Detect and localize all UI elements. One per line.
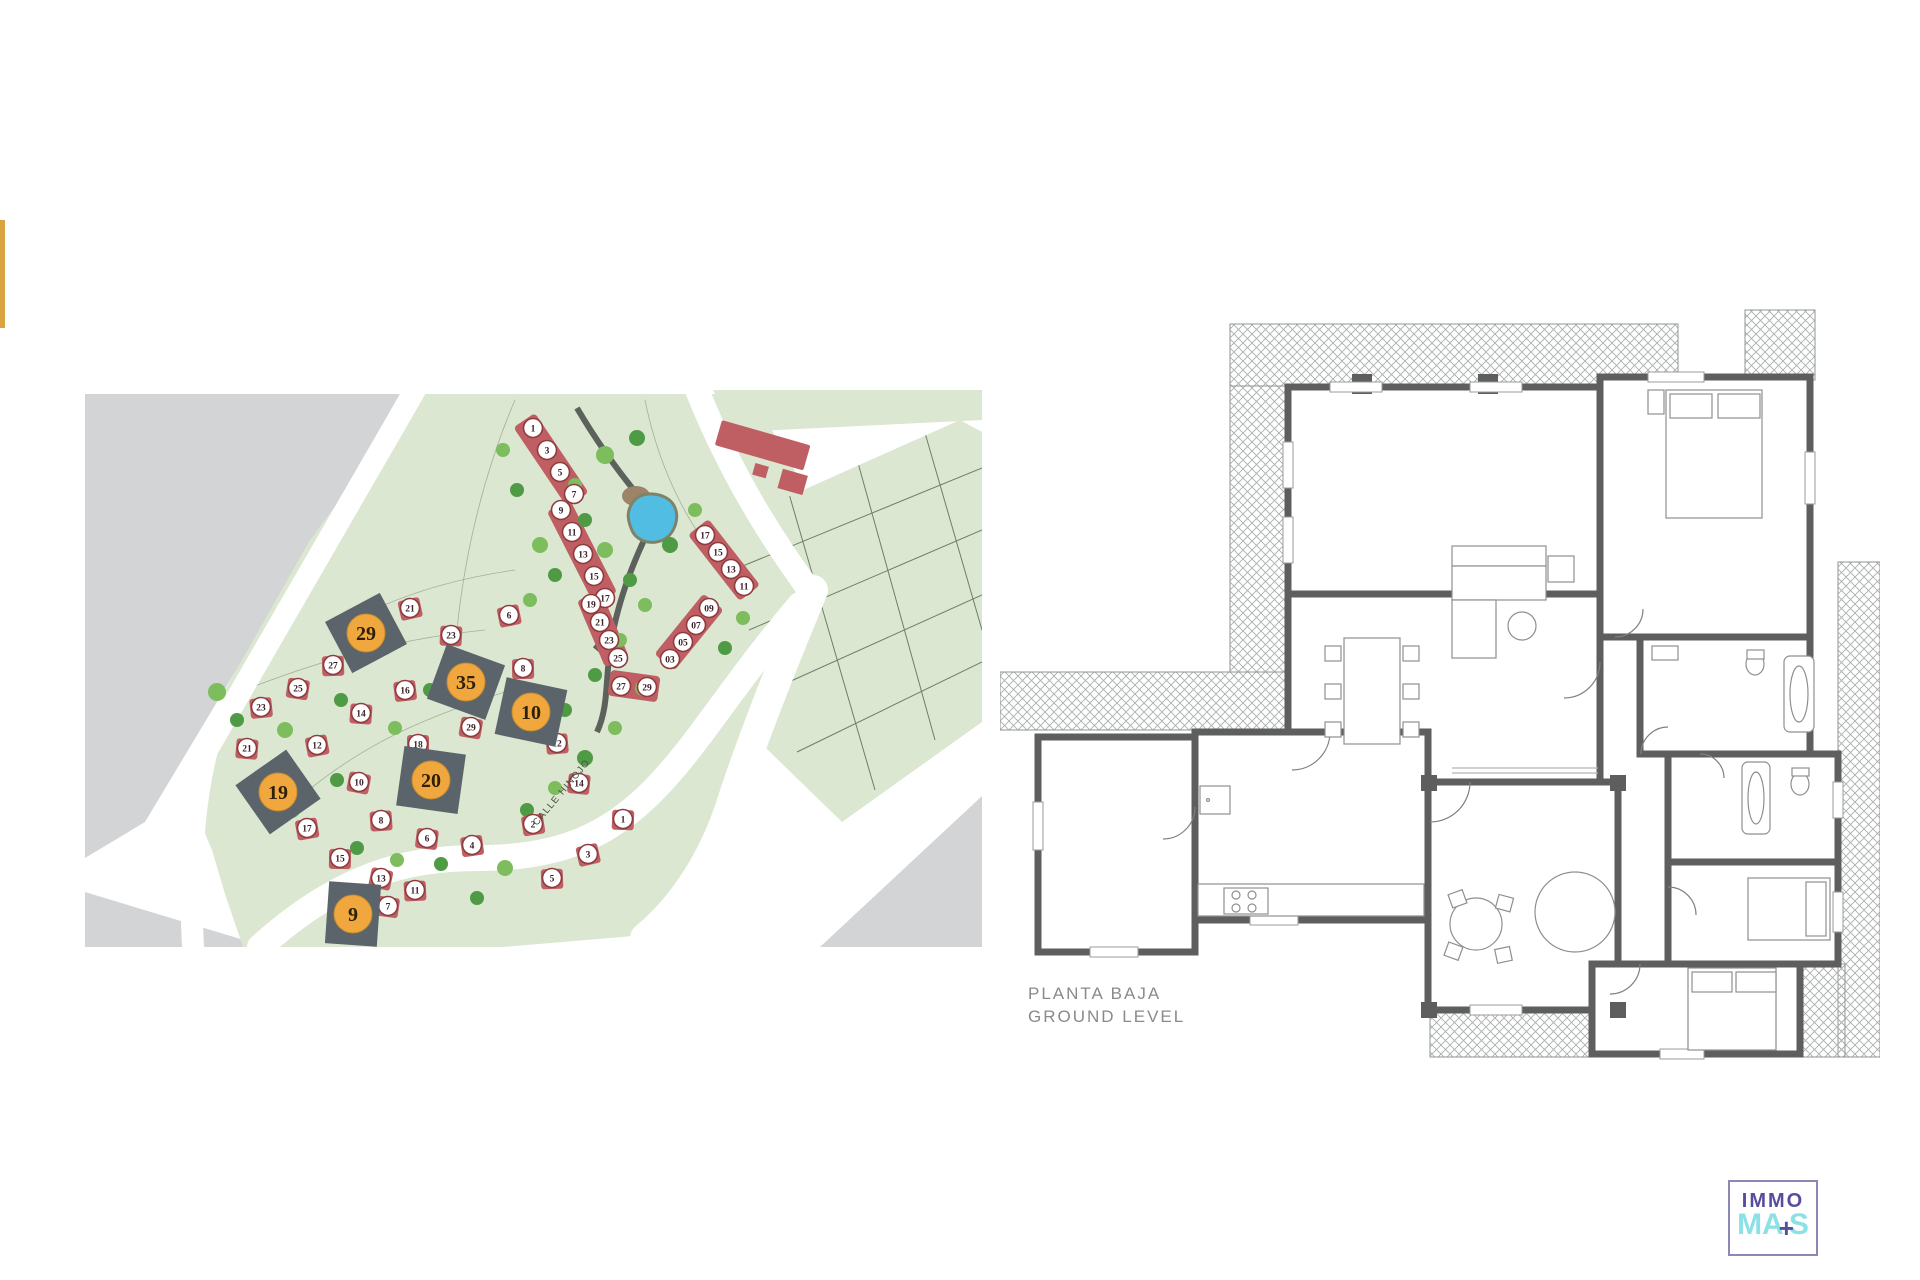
plot-number: 9 [559, 506, 564, 516]
rowhouse-number-marker: 29 [638, 678, 657, 697]
rowhouse-number-marker: 5 [551, 463, 570, 482]
house-marker: 17 [295, 817, 320, 841]
tree-icon [470, 891, 484, 905]
dining-table [1344, 638, 1400, 744]
plot-number: 12 [312, 741, 322, 751]
tree-icon [388, 721, 402, 735]
tree-icon [688, 503, 702, 517]
house-marker: 5 [541, 869, 564, 890]
plot-number: 25 [613, 654, 623, 664]
plot-number: 6 [507, 611, 512, 621]
sink-1 [1652, 646, 1678, 660]
rug-circle [1535, 872, 1615, 952]
rowhouse-number-marker: 15 [585, 567, 604, 586]
plot-number: 17 [302, 824, 312, 834]
plot-number: 7 [386, 902, 391, 912]
plot-number: 5 [558, 468, 563, 478]
house-marker: 14 [349, 703, 372, 724]
plot-number: 21 [595, 618, 605, 628]
tree-icon [497, 860, 513, 876]
tree-icon [208, 683, 226, 701]
plot-number: 03 [665, 655, 675, 665]
rowhouse-number-marker: 25 [609, 649, 628, 668]
floor-plan-drawing [1000, 262, 1880, 1062]
tree-icon [434, 857, 448, 871]
rowhouse-number-marker: 09 [700, 599, 719, 618]
tree-icon [608, 721, 622, 735]
house-marker: 16 [393, 680, 417, 703]
tree-icon [277, 722, 293, 738]
coffee-table [1508, 612, 1536, 640]
site-plan: 2127252321171513117161412181086423682912… [85, 390, 982, 947]
house-marker: 12 [304, 734, 329, 758]
plot-number: 17 [600, 594, 610, 604]
rowhouse-number-marker: 17 [696, 526, 715, 545]
tree-icon [532, 537, 548, 553]
plus-icon: + [1779, 1213, 1794, 1243]
tree-icon [588, 668, 602, 682]
plot-number: 27 [616, 682, 626, 692]
caption-line-en: GROUND LEVEL [1028, 1005, 1185, 1028]
caption-line-es: PLANTA BAJA [1028, 982, 1185, 1005]
plot-number: 07 [691, 621, 701, 631]
plot-number: 14 [356, 709, 366, 719]
rowhouse-number-marker: 03 [661, 650, 680, 669]
floor-plan [1000, 262, 1880, 1062]
house-marker: 29 [458, 716, 483, 740]
plot-number: 13 [726, 565, 736, 575]
house-marker: 8 [369, 810, 392, 831]
plot-number: 15 [589, 572, 599, 582]
rowhouse-number-marker: 13 [574, 545, 593, 564]
rowhouse-number-marker: 3 [538, 441, 557, 460]
rowhouse-number-marker: 27 [612, 677, 631, 696]
tree-icon [330, 773, 344, 787]
pond [628, 494, 676, 542]
plot-number: 21 [242, 744, 252, 754]
immomas-logo: IMMO MA+S [1728, 1180, 1818, 1256]
highlighted-plot-number: 10 [521, 702, 541, 724]
plot-number: 8 [379, 816, 384, 826]
site-plan-map: 2127252321171513117161412181086423682912… [85, 390, 982, 947]
tree-icon [334, 693, 348, 707]
plot-number: 3 [545, 446, 550, 456]
highlighted-plot-marker: 9 [325, 881, 381, 946]
plot-number: 09 [704, 604, 714, 614]
tree-icon [578, 513, 592, 527]
floor-plan-caption: PLANTA BAJA GROUND LEVEL [1028, 982, 1185, 1028]
rowhouse-number-marker: 11 [735, 577, 754, 596]
rowhouse-number-marker: 13 [722, 560, 741, 579]
brochure-page: { "accent_color": "#d9a33f", "site_plan"… [0, 0, 1920, 1280]
plot-number: 05 [678, 638, 688, 648]
rowhouse-number-marker: 19 [582, 595, 601, 614]
plot-number: 13 [376, 874, 386, 884]
house-marker: 21 [235, 738, 259, 760]
house-marker: 4 [460, 835, 485, 858]
plot-number: 23 [256, 703, 266, 713]
house-marker: 11 [404, 880, 427, 901]
gold-accent-bar [0, 220, 5, 328]
rowhouse-number-marker: 05 [674, 633, 693, 652]
plot-number: 4 [470, 841, 475, 851]
rowhouse-number-marker: 7 [565, 485, 584, 504]
house-marker: 23 [249, 697, 273, 719]
plot-number: 23 [446, 631, 456, 641]
highlighted-plot-number: 19 [268, 782, 288, 804]
plot-number: 1 [621, 815, 626, 825]
house-marker: 25 [285, 677, 310, 700]
plot-number: 21 [405, 604, 415, 614]
tree-icon [662, 537, 678, 553]
house-marker: 6 [415, 828, 439, 851]
tree-icon [597, 542, 613, 558]
highlighted-plot-marker: 20 [396, 746, 466, 814]
plot-number: 16 [400, 686, 410, 696]
tree-icon [523, 593, 537, 607]
fridge [1200, 786, 1230, 814]
plot-number: 29 [466, 723, 476, 733]
rowhouse-number-marker: 07 [687, 616, 706, 635]
house-marker: 8 [512, 659, 534, 680]
highlighted-plot-number: 9 [348, 904, 358, 926]
tree-icon [638, 598, 652, 612]
tree-icon [736, 611, 750, 625]
tree-icon [496, 443, 510, 457]
tree-icon [623, 573, 637, 587]
plot-number: 11 [568, 528, 577, 538]
plot-number: 15 [335, 854, 345, 864]
plot-number: 10 [354, 778, 364, 788]
plot-number: 6 [425, 834, 430, 844]
plot-number: 15 [713, 548, 723, 558]
sofa [1452, 546, 1546, 566]
plot-number: 11 [740, 582, 749, 592]
house-marker: 10 [346, 771, 371, 795]
rowhouse-number-marker: 23 [600, 631, 619, 650]
rowhouse-number-marker: 1 [524, 419, 543, 438]
plot-number: 25 [293, 684, 303, 694]
tree-icon [350, 841, 364, 855]
tree-icon [230, 713, 244, 727]
plot-number: 1 [531, 424, 536, 434]
tree-icon [629, 430, 645, 446]
tree-icon [718, 641, 732, 655]
plot-number: 5 [550, 874, 555, 884]
plot-number: 29 [642, 683, 652, 693]
plot-number: 13 [578, 550, 588, 560]
house-marker: 23 [439, 625, 462, 646]
plot-number: 3 [586, 850, 591, 860]
logo-word-mas: MA+S [1730, 1210, 1816, 1240]
rowhouse-number-marker: 15 [709, 543, 728, 562]
highlighted-plot-number: 20 [421, 770, 441, 792]
plot-number: 27 [328, 661, 338, 671]
house-marker: 15 [329, 849, 351, 870]
rowhouse-number-marker: 11 [563, 523, 582, 542]
tree-icon [510, 483, 524, 497]
rowhouse-number-marker: 9 [552, 501, 571, 520]
tree-icon [390, 853, 404, 867]
highlighted-plot-number: 29 [356, 623, 376, 645]
plot-number: 17 [700, 531, 710, 541]
stove [1224, 888, 1268, 914]
plot-number: 19 [586, 600, 596, 610]
rowhouse-number-marker: 21 [591, 613, 610, 632]
plot-number: 11 [411, 886, 420, 896]
plot-number: 8 [521, 664, 526, 674]
house-marker: 1 [612, 810, 635, 831]
tree-icon [596, 446, 614, 464]
house-marker: 27 [322, 656, 345, 677]
tree-icon [548, 568, 562, 582]
plot-number: 23 [604, 636, 614, 646]
plot-number: 7 [572, 490, 577, 500]
highlighted-plot-number: 35 [456, 672, 476, 694]
